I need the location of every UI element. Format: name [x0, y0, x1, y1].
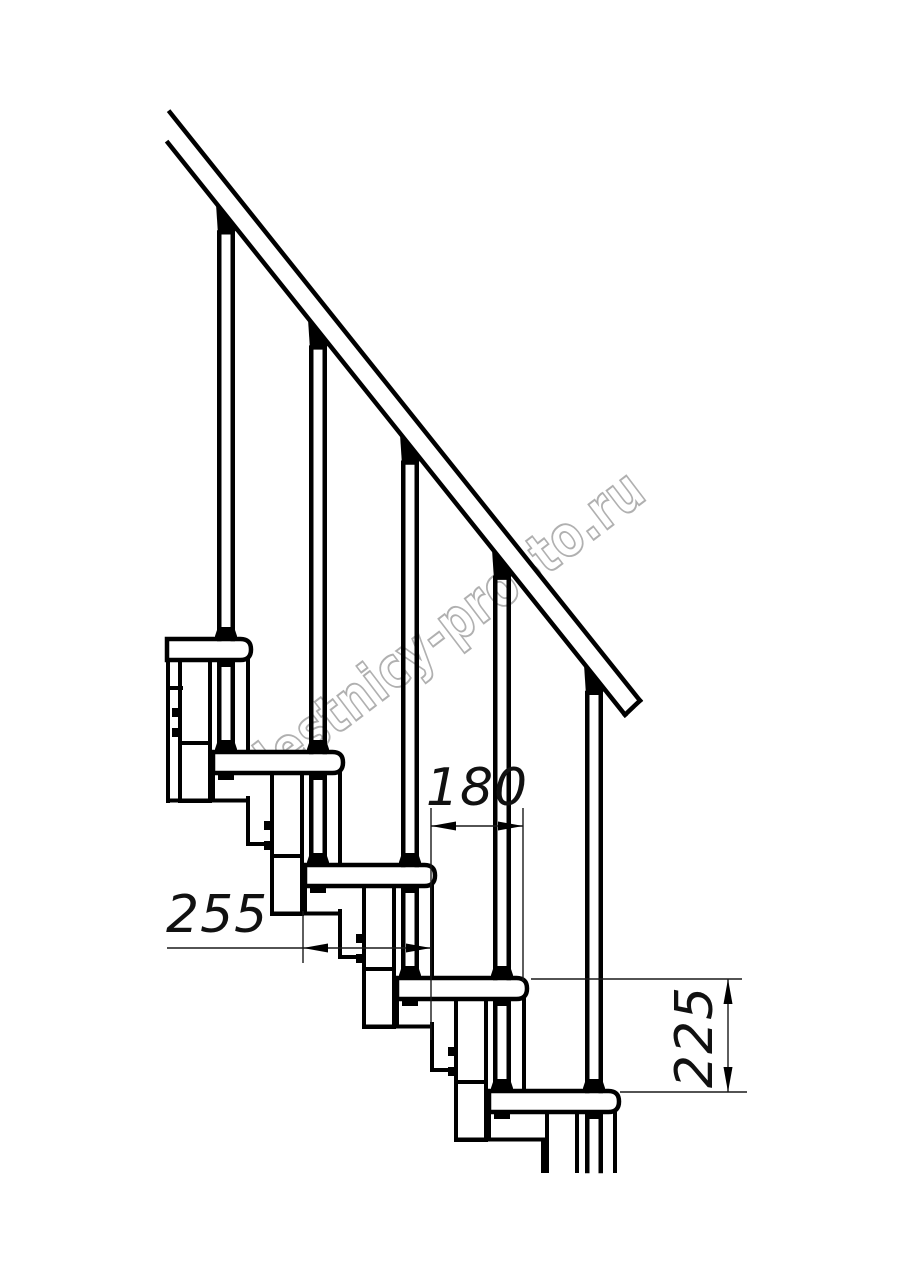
bolt-nub [310, 886, 326, 893]
pipe-base-connector [307, 853, 329, 866]
bolt-nub [218, 660, 234, 667]
tread [167, 639, 251, 660]
bolt-nub [310, 773, 326, 780]
support-column [180, 660, 210, 801]
pipe-base-connector [399, 966, 421, 979]
bolt-nub [218, 773, 234, 780]
dimension-arrowhead [303, 944, 328, 953]
staircase-side-elevation-drawing: lestnicy-prosto.ru 180 255 225 [0, 0, 914, 1280]
technical-drawing-page: lestnicy-prosto.ru 180 255 225 [0, 0, 914, 1280]
dimension-arrowhead [431, 822, 456, 831]
bolt-nub [402, 999, 418, 1006]
dimension-depth-label: 255 [166, 885, 268, 945]
tread [213, 752, 343, 773]
bolt-nub [402, 886, 418, 893]
staircase-structure [167, 112, 640, 1171]
watermark: lestnicy-prosto.ru [244, 456, 658, 793]
column-bolt [264, 821, 272, 830]
pipe-base-connector [215, 740, 237, 753]
bolt-nub [494, 999, 510, 1006]
tread [397, 978, 527, 999]
column-bolt [172, 728, 180, 737]
support-column [364, 886, 394, 1027]
support-column [272, 773, 302, 914]
tread [305, 865, 435, 886]
tread [489, 1091, 619, 1112]
dimension-rise-label: 225 [665, 986, 725, 1088]
column-bolt [172, 708, 180, 717]
bolt-nub [494, 1112, 510, 1119]
watermark-text: lestnicy-prosto.ru [244, 456, 658, 793]
column-bolt [448, 1047, 456, 1056]
pipe-base-connector [491, 1079, 513, 1092]
column-bolt [356, 934, 364, 943]
support-column [456, 999, 486, 1140]
bolt-nub [586, 1112, 602, 1119]
dimension-run-label: 180 [426, 758, 528, 818]
